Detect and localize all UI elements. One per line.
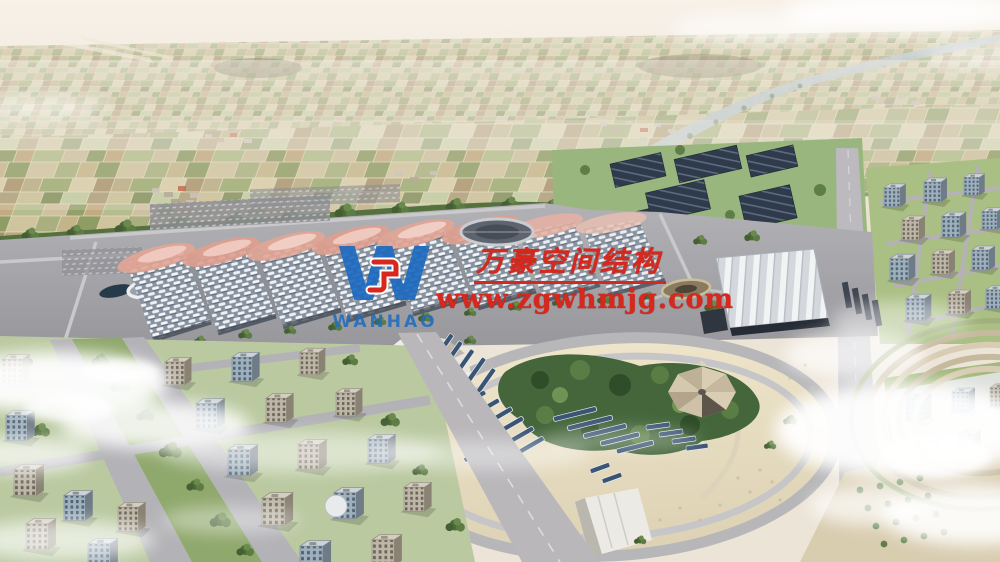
scene-canvas [0,0,1000,562]
central-dome [461,219,533,245]
aerial-rendering: W WANHAO 万豪空间结构 www.zgwhmjg.com [0,0,1000,562]
sphere-building [325,495,347,517]
cone-tent-small [668,367,736,418]
